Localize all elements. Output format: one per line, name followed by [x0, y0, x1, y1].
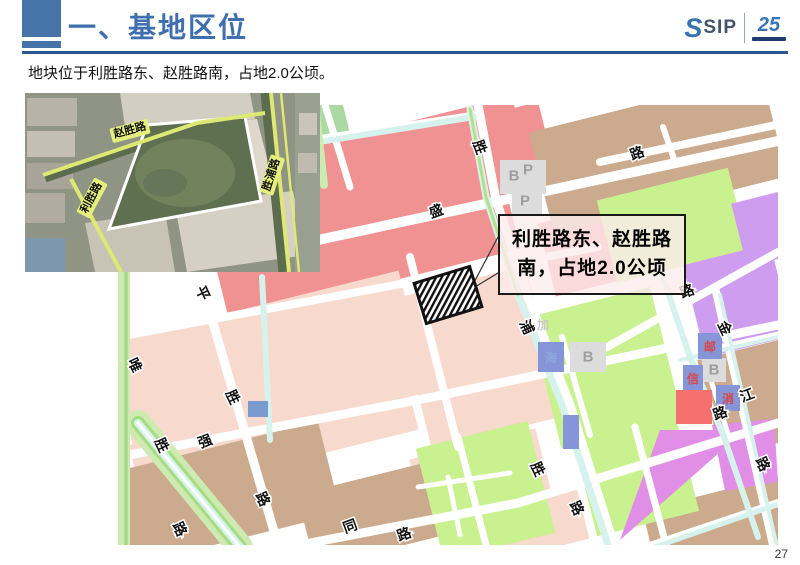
- anniversary-25: 25: [758, 15, 780, 35]
- map-area-label: B: [509, 168, 520, 185]
- sip-s-icon: S: [684, 15, 702, 42]
- sip-logo: S SIP 25: [684, 8, 786, 48]
- map-facility-label: 信: [687, 371, 699, 386]
- map-area-label: B: [709, 362, 720, 379]
- page-title: 一、基地区位: [68, 6, 248, 46]
- header-underline: [22, 51, 788, 54]
- map-area-label: B: [583, 349, 594, 366]
- anniversary-mark: 25: [752, 15, 786, 41]
- map-facility-label: 消: [722, 391, 734, 406]
- map-facility-label: 加: [536, 317, 549, 332]
- page-number: 27: [775, 547, 788, 561]
- map-facility-label: 海: [545, 350, 557, 365]
- callout-line1: 利胜路东、赵胜路: [512, 226, 672, 255]
- satellite-inset: 赵胜路利胜路胜浦路: [25, 93, 320, 272]
- logo-divider: [744, 13, 745, 43]
- map-area-label: P: [523, 162, 533, 179]
- intro-text: 地块位于利胜路东、赵胜路南，占地2.0公顷。: [28, 62, 334, 83]
- sip-logo-text: SIP: [703, 17, 737, 39]
- map-facility-label: 邮: [704, 339, 716, 354]
- callout-line2: 南，占地2.0公顷: [517, 255, 666, 284]
- title-accent-bar: [22, 41, 61, 48]
- slide: 一、基地区位 S SIP 25 地块位于利胜路东、赵胜路南，占地2.0公顷。: [0, 0, 800, 565]
- site-callout: 利胜路东、赵胜路 南，占地2.0公顷: [498, 214, 686, 295]
- anniversary-small-text-bar: [752, 37, 786, 41]
- title-accent-square: [22, 0, 61, 37]
- map-area-label: P: [520, 193, 530, 210]
